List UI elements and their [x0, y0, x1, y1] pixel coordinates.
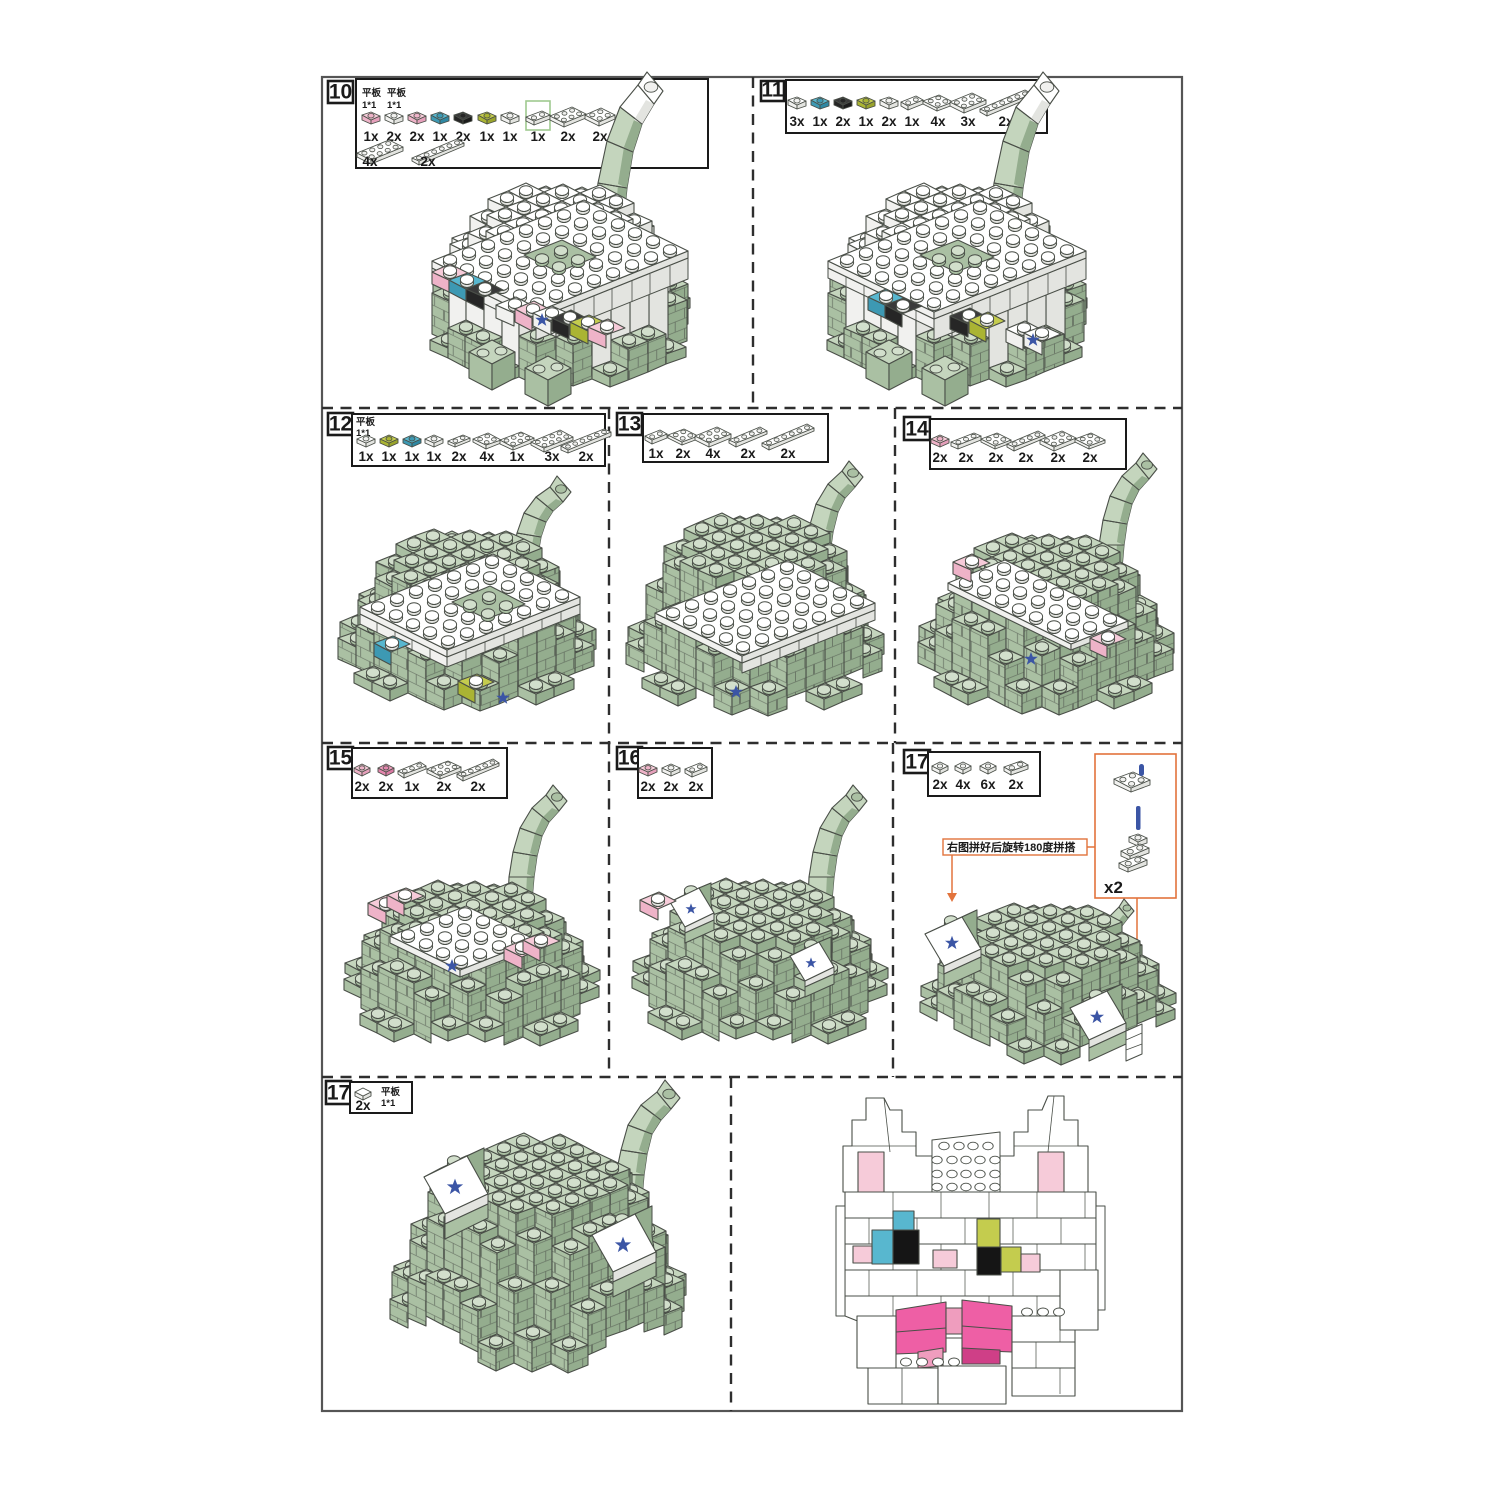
svg-text:4x: 4x	[479, 449, 495, 464]
svg-text:2x: 2x	[1050, 450, 1066, 465]
svg-text:1x: 1x	[530, 129, 546, 144]
svg-text:1x: 1x	[381, 449, 397, 464]
svg-text:13: 13	[618, 413, 641, 436]
svg-text:1x: 1x	[648, 446, 664, 461]
svg-text:1*1: 1*1	[362, 100, 377, 111]
svg-text:3x: 3x	[789, 114, 805, 129]
svg-text:1x: 1x	[904, 114, 920, 129]
svg-text:1x: 1x	[479, 129, 495, 144]
svg-text:1x: 1x	[404, 779, 420, 794]
svg-text:4x: 4x	[705, 446, 721, 461]
svg-text:6x: 6x	[980, 777, 996, 792]
svg-text:1x: 1x	[358, 449, 374, 464]
svg-text:1*1: 1*1	[381, 1098, 396, 1109]
svg-text:14: 14	[905, 418, 929, 441]
svg-text:平板: 平板	[387, 87, 407, 99]
svg-text:3x: 3x	[544, 449, 560, 464]
svg-text:2x: 2x	[378, 779, 394, 794]
svg-text:15: 15	[329, 747, 353, 770]
svg-text:1x: 1x	[426, 449, 442, 464]
svg-text:17: 17	[905, 751, 928, 774]
svg-text:2x: 2x	[958, 450, 974, 465]
svg-text:17: 17	[327, 1082, 350, 1105]
svg-text:2x: 2x	[932, 777, 948, 792]
svg-text:2x: 2x	[560, 129, 576, 144]
svg-text:2x: 2x	[688, 779, 704, 794]
svg-text:2x: 2x	[1018, 450, 1034, 465]
svg-text:2x: 2x	[578, 449, 594, 464]
svg-text:2x: 2x	[420, 154, 436, 169]
svg-text:平板: 平板	[381, 1086, 401, 1098]
svg-text:右图拼好后旋转180度拼搭: 右图拼好后旋转180度拼搭	[946, 840, 1076, 854]
svg-text:2x: 2x	[932, 450, 948, 465]
svg-text:1x: 1x	[432, 129, 448, 144]
svg-text:2x: 2x	[451, 449, 467, 464]
svg-text:平板: 平板	[362, 87, 382, 99]
svg-text:1x: 1x	[404, 449, 420, 464]
svg-text:4x: 4x	[955, 777, 971, 792]
svg-text:1x: 1x	[812, 114, 828, 129]
svg-text:11: 11	[761, 79, 784, 102]
svg-text:2x: 2x	[740, 446, 756, 461]
svg-text:2x: 2x	[835, 114, 851, 129]
svg-text:2x: 2x	[1008, 777, 1024, 792]
svg-text:x2: x2	[1104, 878, 1123, 897]
svg-text:4x: 4x	[362, 154, 378, 169]
svg-text:4x: 4x	[930, 114, 946, 129]
svg-text:2x: 2x	[988, 450, 1004, 465]
svg-text:3x: 3x	[960, 114, 976, 129]
svg-text:2x: 2x	[592, 129, 608, 144]
svg-text:2x: 2x	[1082, 450, 1098, 465]
svg-text:1x: 1x	[502, 129, 518, 144]
svg-text:1*1: 1*1	[387, 100, 402, 111]
svg-text:2x: 2x	[409, 129, 425, 144]
svg-text:2x: 2x	[354, 779, 370, 794]
svg-text:2x: 2x	[780, 446, 796, 461]
svg-text:2x: 2x	[355, 1098, 371, 1113]
svg-text:2x: 2x	[640, 779, 656, 794]
svg-text:12: 12	[329, 413, 352, 436]
svg-text:2x: 2x	[436, 779, 452, 794]
svg-text:平板: 平板	[356, 416, 376, 428]
svg-text:1x: 1x	[509, 449, 525, 464]
svg-text:2x: 2x	[881, 114, 897, 129]
svg-text:2x: 2x	[470, 779, 486, 794]
svg-text:1x: 1x	[858, 114, 874, 129]
svg-text:2x: 2x	[675, 446, 691, 461]
svg-text:10: 10	[329, 81, 352, 104]
svg-text:2x: 2x	[663, 779, 679, 794]
svg-text:1x: 1x	[363, 129, 379, 144]
